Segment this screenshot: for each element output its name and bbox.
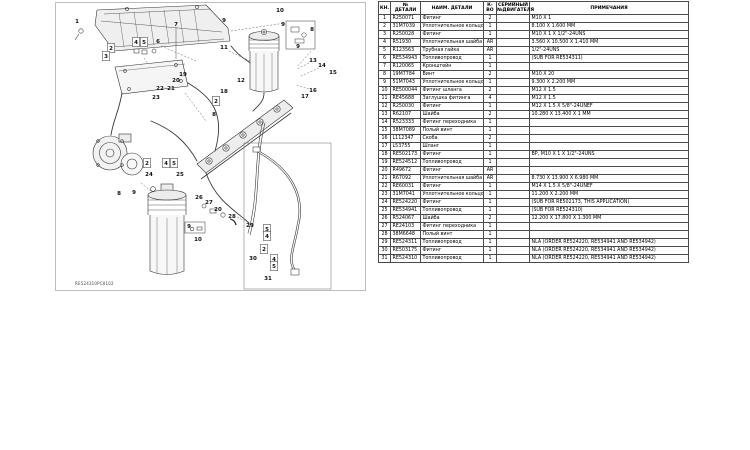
- table-header-row: КН. № ДЕТАЛИ НАИМ. ДЕТАЛИ К- ВО СЕРИЙНЫЙ…: [379, 2, 689, 15]
- cell-name: Топливопровод: [421, 255, 484, 263]
- cell-part: RE534941: [391, 207, 421, 215]
- cell-name: Шланг: [421, 143, 484, 151]
- callout-6: 6: [156, 39, 160, 45]
- cell-qty: 1: [484, 79, 497, 87]
- cell-qty: 2: [484, 135, 497, 143]
- cell-num: 21: [379, 175, 391, 183]
- cell-serial: [497, 31, 530, 39]
- cell-serial: [497, 95, 530, 103]
- cell-name: Уплотнительное кольцо: [421, 23, 484, 31]
- cell-name: Трубная гайка: [421, 47, 484, 55]
- cell-remarks: [530, 167, 689, 175]
- cell-part: RE524512: [391, 159, 421, 167]
- cell-part: L53755: [391, 143, 421, 151]
- callout-31: 31: [264, 276, 272, 282]
- callout-16: 16: [309, 88, 317, 94]
- cell-qty: 1: [484, 255, 497, 263]
- callout-4: 4: [164, 161, 168, 167]
- cell-remarks: NLA (ORDER RE524220, RE534941 AND RE5349…: [530, 239, 689, 247]
- cell-qty: 1: [484, 207, 497, 215]
- cell-serial: [497, 231, 530, 239]
- cell-num: 12: [379, 103, 391, 111]
- cell-serial: [497, 87, 530, 95]
- callout-12: 12: [237, 78, 245, 84]
- cell-num: 24: [379, 199, 391, 207]
- cell-remarks: [530, 159, 689, 167]
- cell-serial: [497, 223, 530, 231]
- lower-filter-art: [148, 184, 186, 275]
- callout-10: 10: [194, 237, 202, 243]
- cell-part: R524067: [391, 215, 421, 223]
- table-row: 12R250030Фитинг1M12 X 1.5 X 5/8"-24UNEF: [379, 103, 689, 111]
- table-row: 14R523333Фитинг переходника1: [379, 119, 689, 127]
- callout-9: 9: [281, 22, 285, 28]
- cell-remarks: 1/2"-24UNS: [530, 47, 689, 55]
- callout-20: 20: [172, 78, 180, 84]
- cell-remarks: 12.200 X 17.800 X 1.300 MM: [530, 215, 689, 223]
- cell-serial: [497, 199, 530, 207]
- table-row: 30RE503175Фитинг1NLA (ORDER RE524220, RE…: [379, 247, 689, 255]
- callout-30: 30: [249, 256, 257, 262]
- cell-name: Фитинг: [421, 31, 484, 39]
- exploded-diagram-panel: 1234567910989111213141516171828192021222…: [55, 2, 366, 291]
- cell-part: R49672: [391, 167, 421, 175]
- cell-part: R250028: [391, 31, 421, 39]
- cell-serial: [497, 215, 530, 223]
- table-row: 819M7784Винт2M10 X 20: [379, 71, 689, 79]
- parts-table: КН. № ДЕТАЛИ НАИМ. ДЕТАЛИ К- ВО СЕРИЙНЫЙ…: [378, 1, 689, 263]
- cell-name: Винт: [421, 71, 484, 79]
- cell-name: Скоба: [421, 135, 484, 143]
- callout-9: 9: [296, 44, 300, 50]
- callout-14: 14: [318, 63, 326, 69]
- callout-18: 18: [220, 89, 228, 95]
- cell-part: RE534943: [391, 55, 421, 63]
- cell-num: 23: [379, 191, 391, 199]
- table-row: 19RE524512Топливопровод1: [379, 159, 689, 167]
- cell-qty: 1: [484, 231, 497, 239]
- table-row: 29RE524311Топливопровод1NLA (ORDER RE524…: [379, 239, 689, 247]
- callout-25: 25: [176, 172, 184, 178]
- cell-remarks: M10 X 1: [530, 15, 689, 23]
- table-row: 951M7043Уплотнительное кольцо19.300 X 2.…: [379, 79, 689, 87]
- callout-2: 2: [262, 247, 266, 253]
- cell-part: 38M7089: [391, 127, 421, 135]
- callout-21: 21: [167, 86, 175, 92]
- cell-remarks: 10.280 X 13.400 X 1 MM: [530, 111, 689, 119]
- callout-9: 9: [187, 224, 191, 230]
- cell-remarks: 9.300 X 2.200 MM: [530, 79, 689, 87]
- cell-remarks: NLA (ORDER RE524220, RE534941 AND RE5349…: [530, 247, 689, 255]
- cell-qty: 2: [484, 215, 497, 223]
- cell-remarks: [530, 231, 689, 239]
- table-row: 21R67092Уплотнительная шайбаAR8.730 X 13…: [379, 175, 689, 183]
- cell-name: Фитинг переходника: [421, 223, 484, 231]
- cell-name: Фитинг переходника: [421, 119, 484, 127]
- upper-filter-art: [249, 29, 279, 92]
- cell-name: Фитинг: [421, 151, 484, 159]
- cell-qty: 1: [484, 23, 497, 31]
- cell-num: 22: [379, 183, 391, 191]
- cell-num: 20: [379, 167, 391, 175]
- cell-remarks: 11.200 X 2.200 MM: [530, 191, 689, 199]
- cell-serial: [497, 247, 530, 255]
- cell-part: R51930: [391, 39, 421, 47]
- cell-serial: [497, 151, 530, 159]
- cell-part: RE500044: [391, 87, 421, 95]
- cell-remarks: M12 X 1.5: [530, 95, 689, 103]
- cell-remarks: (SUB FOR RE502173, THIS APPLICATION): [530, 199, 689, 207]
- cell-num: 3: [379, 31, 391, 39]
- table-row: 13R62107Шайба210.280 X 13.400 X 1 MM: [379, 111, 689, 119]
- cell-serial: [497, 255, 530, 263]
- callout-5: 5: [172, 161, 176, 167]
- cell-serial: [497, 103, 530, 111]
- parts-catalog-page: 1234567910989111213141516171828192021222…: [0, 0, 750, 450]
- callout-5: 5: [272, 264, 276, 270]
- callout-17: 17: [301, 94, 309, 100]
- cell-num: 18: [379, 151, 391, 159]
- table-row: 6RE534943Топливопровод1(SUB FOR RE534311…: [379, 55, 689, 63]
- callout-5: 5: [142, 40, 146, 46]
- callout-13: 13: [309, 58, 317, 64]
- cell-name: Шайба: [421, 215, 484, 223]
- callout-2: 2: [109, 46, 113, 52]
- cell-qty: 2: [484, 15, 497, 23]
- callout-8: 8: [212, 112, 216, 118]
- cell-serial: [497, 127, 530, 135]
- cell-serial: [497, 143, 530, 151]
- cell-serial: [497, 191, 530, 199]
- cell-name: Фитинг: [421, 183, 484, 191]
- cell-qty: 1: [484, 143, 497, 151]
- callout-2: 2: [214, 99, 218, 105]
- cell-part: 19M7784: [391, 71, 421, 79]
- cell-num: 4: [379, 39, 391, 47]
- table-row: 27RE24103Фитинг переходника1: [379, 223, 689, 231]
- cell-serial: [497, 175, 530, 183]
- cell-serial: [497, 183, 530, 191]
- table-row: 231M7039Уплотнительное кольцо18.100 X 1.…: [379, 23, 689, 31]
- cell-serial: [497, 79, 530, 87]
- cell-qty: AR: [484, 175, 497, 183]
- cell-remarks: (SUB FOR RE524310): [530, 207, 689, 215]
- cell-part: 31M7039: [391, 23, 421, 31]
- table-row: 2331M7041Уплотнительное кольцо111.200 X …: [379, 191, 689, 199]
- cell-qty: 2: [484, 87, 497, 95]
- cell-part: R523333: [391, 119, 421, 127]
- cell-name: Уплотнительное кольцо: [421, 79, 484, 87]
- callout-23: 23: [152, 95, 160, 101]
- callout-3: 3: [104, 54, 108, 60]
- table-row: 1538M7089Полый винт1: [379, 127, 689, 135]
- cell-qty: 1: [484, 31, 497, 39]
- callout-11: 11: [220, 45, 228, 51]
- cell-name: Фитинг: [421, 199, 484, 207]
- cell-num: 1: [379, 15, 391, 23]
- callout-4: 4: [134, 40, 138, 46]
- cell-num: 15: [379, 127, 391, 135]
- callout-9: 9: [132, 190, 136, 196]
- table-row: 5R123563Трубная гайкаAR1/2"-24UNS: [379, 47, 689, 55]
- cell-serial: [497, 207, 530, 215]
- cell-part: L112347: [391, 135, 421, 143]
- callout-22: 22: [156, 86, 164, 92]
- cell-serial: [497, 71, 530, 79]
- cell-remarks: M10 X 1 X 1/2"-24UNS: [530, 31, 689, 39]
- table-row: 24RE524220Фитинг1(SUB FOR RE502173, THIS…: [379, 199, 689, 207]
- callout-24: 24: [145, 172, 153, 178]
- table-row: 2838M6648Полый винт1: [379, 231, 689, 239]
- cell-serial: [497, 15, 530, 23]
- cell-num: 28: [379, 231, 391, 239]
- callout-2: 2: [145, 161, 149, 167]
- table-row: 26R524067Шайба212.200 X 17.800 X 1.300 M…: [379, 215, 689, 223]
- cell-serial: [497, 55, 530, 63]
- cell-serial: [497, 23, 530, 31]
- cell-name: Уплотнительное кольцо: [421, 191, 484, 199]
- table-row: 7R120065Кронштейн1: [379, 63, 689, 71]
- callout-28: 28: [228, 214, 236, 220]
- callout-15: 15: [329, 70, 337, 76]
- cell-name: Фитинг: [421, 103, 484, 111]
- cell-name: Фитинг: [421, 15, 484, 23]
- cell-qty: 1: [484, 183, 497, 191]
- cell-num: 16: [379, 135, 391, 143]
- col-header-engine-serial: СЕРИЙНЫЙ №ДВИГАТЕЛЯ: [497, 2, 530, 15]
- cell-remarks: [530, 127, 689, 135]
- cell-remarks: 3.560 X 10.500 X 1.410 MM: [530, 39, 689, 47]
- cell-serial: [497, 39, 530, 47]
- cell-qty: 1: [484, 127, 497, 135]
- cell-remarks: 8.100 X 1.600 MM: [530, 23, 689, 31]
- cell-qty: AR: [484, 39, 497, 47]
- cell-qty: 1: [484, 55, 497, 63]
- callout-19: 19: [179, 72, 187, 78]
- exploded-parts-diagram: 1234567910989111213141516171828192021222…: [56, 3, 367, 292]
- cell-num: 10: [379, 87, 391, 95]
- cell-remarks: 8.730 X 13.900 X 6.980 MM: [530, 175, 689, 183]
- cell-name: Уплотнительная шайба: [421, 39, 484, 47]
- cell-name: Топливопровод: [421, 207, 484, 215]
- col-header-remarks: ПРИМЕЧАНИЯ: [530, 2, 689, 15]
- cell-part: R67092: [391, 175, 421, 183]
- cell-num: 17: [379, 143, 391, 151]
- col-header-part-name: НАИМ. ДЕТАЛИ: [421, 2, 484, 15]
- cell-part: RE524220: [391, 199, 421, 207]
- cell-num: 7: [379, 63, 391, 71]
- callout-20: 20: [214, 207, 222, 213]
- table-row: 20R49672ФитингAR: [379, 167, 689, 175]
- col-header-quantity: К- ВО: [484, 2, 497, 15]
- cell-qty: AR: [484, 47, 497, 55]
- cell-serial: [497, 167, 530, 175]
- cell-serial: [497, 111, 530, 119]
- cell-part: RE524311: [391, 239, 421, 247]
- cell-name: Фитинг: [421, 247, 484, 255]
- table-row: 10RE500044Фитинг шланга2M12 X 1.5: [379, 87, 689, 95]
- cell-part: RE60031: [391, 183, 421, 191]
- cell-num: 30: [379, 247, 391, 255]
- cell-remarks: [530, 63, 689, 71]
- figure-caption: RE524310PC0102: [75, 281, 114, 286]
- cell-qty: 2: [484, 111, 497, 119]
- cell-num: 25: [379, 207, 391, 215]
- cell-num: 8: [379, 71, 391, 79]
- cell-name: Фитинг: [421, 167, 484, 175]
- cell-serial: [497, 239, 530, 247]
- valve-cover-art: [95, 5, 230, 51]
- cell-remarks: [530, 119, 689, 127]
- cell-remarks: [530, 135, 689, 143]
- cell-remarks: M12 X 1.5: [530, 87, 689, 95]
- cell-part: RE524310: [391, 255, 421, 263]
- cell-part: R250071: [391, 15, 421, 23]
- cell-remarks: M12 X 1.5 X 5/8"-24UNEF: [530, 103, 689, 111]
- cell-name: Кронштейн: [421, 63, 484, 71]
- cell-num: 14: [379, 119, 391, 127]
- cell-num: 19: [379, 159, 391, 167]
- cell-remarks: [530, 223, 689, 231]
- callout-26: 26: [195, 195, 203, 201]
- cell-num: 11: [379, 95, 391, 103]
- table-row: 25RE534941Топливопровод1(SUB FOR RE52431…: [379, 207, 689, 215]
- cell-part: RE502173: [391, 151, 421, 159]
- table-row: 11RE45688Заглушка фитинга4M12 X 1.5: [379, 95, 689, 103]
- cell-qty: 1: [484, 239, 497, 247]
- cell-num: 2: [379, 23, 391, 31]
- table-row: 31RE524310Топливопровод1NLA (ORDER RE524…: [379, 255, 689, 263]
- callout-7: 7: [174, 22, 178, 28]
- cell-qty: AR: [484, 167, 497, 175]
- cell-serial: [497, 135, 530, 143]
- cell-part: R62107: [391, 111, 421, 119]
- cell-num: 6: [379, 55, 391, 63]
- table-row: 18RE502173Фитинг1BP, M10 X 1 X 1/2"-24UN…: [379, 151, 689, 159]
- cell-part: RE503175: [391, 247, 421, 255]
- cell-qty: 2: [484, 71, 497, 79]
- callout-29: 29: [246, 223, 254, 229]
- cell-qty: 1: [484, 103, 497, 111]
- cell-name: Полый винт: [421, 231, 484, 239]
- cell-remarks: [530, 143, 689, 151]
- cell-serial: [497, 63, 530, 71]
- cell-num: 9: [379, 79, 391, 87]
- cell-name: Топливопровод: [421, 159, 484, 167]
- cell-qty: 1: [484, 63, 497, 71]
- cell-qty: 4: [484, 95, 497, 103]
- cell-remarks: NLA (ORDER RE524220, RE534941 AND RE5349…: [530, 255, 689, 263]
- cell-part: R123563: [391, 47, 421, 55]
- cell-serial: [497, 47, 530, 55]
- cell-num: 26: [379, 215, 391, 223]
- cell-qty: 1: [484, 159, 497, 167]
- injection-pump-art: [93, 134, 143, 175]
- callout-8: 8: [117, 191, 121, 197]
- cell-remarks: BP, M10 X 1 X 1/2"-24UNS: [530, 151, 689, 159]
- cell-part: 51M7043: [391, 79, 421, 87]
- cell-qty: 1: [484, 191, 497, 199]
- callout-27: 27: [205, 200, 213, 206]
- cell-remarks: (SUB FOR RE534311): [530, 55, 689, 63]
- cell-part: R120065: [391, 63, 421, 71]
- cell-name: Топливопровод: [421, 55, 484, 63]
- cell-part: 31M7041: [391, 191, 421, 199]
- table-row: 3R250028Фитинг1M10 X 1 X 1/2"-24UNS: [379, 31, 689, 39]
- cell-name: Шайба: [421, 111, 484, 119]
- cell-part: RE45688: [391, 95, 421, 103]
- cell-part: RE24103: [391, 223, 421, 231]
- callout-4: 4: [265, 234, 269, 240]
- table-row: 22RE60031Фитинг1M14 X 1.5 X 5/8"-24UNEF: [379, 183, 689, 191]
- callout-8: 8: [310, 27, 314, 33]
- col-header-key-number: КН.: [379, 2, 391, 15]
- cell-remarks: M10 X 20: [530, 71, 689, 79]
- callout-1: 1: [75, 19, 79, 25]
- table-row: 4R51930Уплотнительная шайбаAR3.560 X 10.…: [379, 39, 689, 47]
- cell-qty: 1: [484, 151, 497, 159]
- col-header-part-number: № ДЕТАЛИ: [391, 2, 421, 15]
- table-row: 16L112347Скоба2: [379, 135, 689, 143]
- cell-name: Уплотнительная шайба: [421, 175, 484, 183]
- cell-num: 27: [379, 223, 391, 231]
- callout-9: 9: [222, 18, 226, 24]
- cell-name: Заглушка фитинга: [421, 95, 484, 103]
- fitting-group-box-art: [286, 21, 315, 49]
- cell-name: Фитинг шланга: [421, 87, 484, 95]
- cell-qty: 1: [484, 199, 497, 207]
- cell-num: 29: [379, 239, 391, 247]
- table-row: 1R250071Фитинг2M10 X 1: [379, 15, 689, 23]
- cell-qty: 1: [484, 119, 497, 127]
- cell-num: 13: [379, 111, 391, 119]
- cell-remarks: M14 X 1.5 X 5/8"-24UNEF: [530, 183, 689, 191]
- cell-part: 38M6648: [391, 231, 421, 239]
- cell-num: 5: [379, 47, 391, 55]
- cell-qty: 1: [484, 247, 497, 255]
- cell-serial: [497, 159, 530, 167]
- cell-serial: [497, 119, 530, 127]
- cell-name: Топливопровод: [421, 239, 484, 247]
- cell-qty: 1: [484, 223, 497, 231]
- table-row: 17L53755Шланг1: [379, 143, 689, 151]
- cell-num: 31: [379, 255, 391, 263]
- cell-name: Полый винт: [421, 127, 484, 135]
- callout-10: 10: [276, 8, 284, 14]
- cell-part: R250030: [391, 103, 421, 111]
